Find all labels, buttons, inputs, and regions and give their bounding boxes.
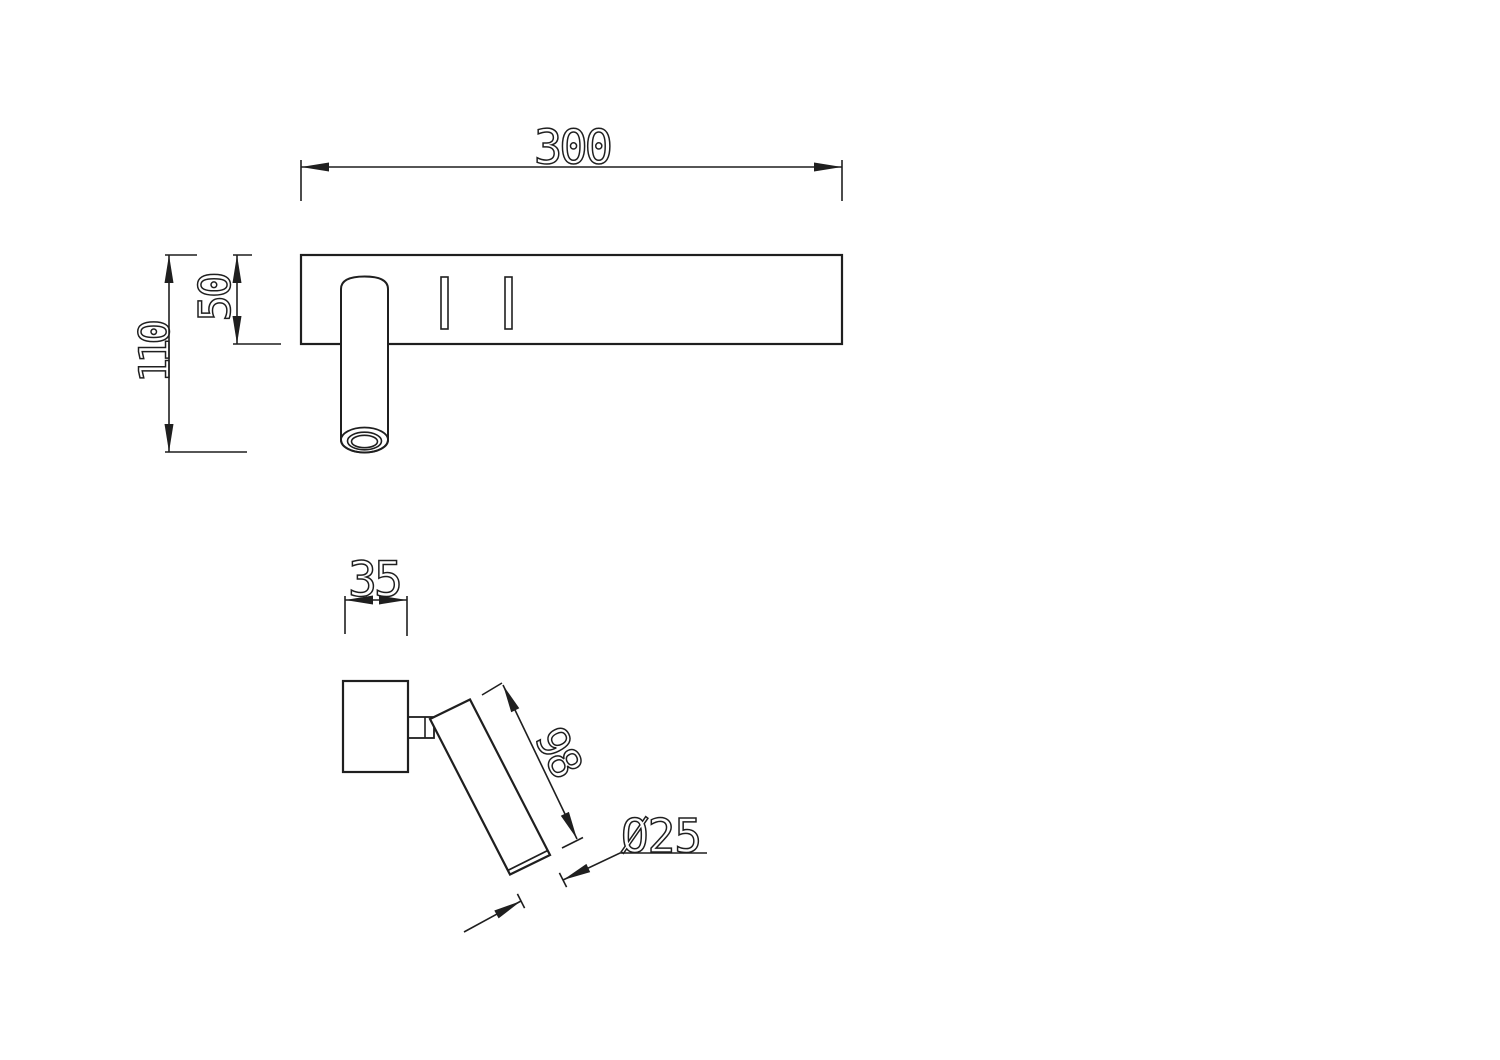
mount-block-outline bbox=[343, 681, 408, 772]
dim-label-total-height: 110 bbox=[134, 325, 176, 383]
dim-label-plate-height: 50 bbox=[194, 275, 238, 322]
dim-label-width: 300 bbox=[534, 125, 610, 172]
arrowhead-right-icon bbox=[814, 163, 842, 172]
arrowhead-down-icon bbox=[165, 424, 174, 452]
dim-head-diameter-25 bbox=[464, 853, 707, 932]
lamp-head bbox=[430, 700, 550, 875]
side-view bbox=[343, 596, 707, 933]
dim-label-mount-width: 35 bbox=[348, 556, 400, 604]
tube-body bbox=[341, 277, 388, 453]
reading-light-tube bbox=[341, 277, 388, 453]
lamp-head-body bbox=[430, 700, 550, 875]
extension-line bbox=[482, 683, 502, 695]
switch-slot-1 bbox=[441, 277, 448, 329]
front-view bbox=[165, 160, 843, 453]
arrowhead-left-icon bbox=[301, 163, 329, 172]
arrowhead-up-right-icon bbox=[494, 901, 521, 918]
arrowhead-up-icon bbox=[165, 255, 174, 283]
extension-line bbox=[562, 838, 583, 849]
arrowhead-up-left-icon bbox=[503, 685, 519, 712]
dim-label-head-diameter: Ø25 bbox=[621, 813, 701, 859]
switch-slot-2 bbox=[505, 277, 512, 329]
arrowhead-down-left-icon bbox=[563, 864, 590, 880]
line-art bbox=[0, 0, 1500, 1060]
technical-drawing-canvas: 300 110 50 35 98 Ø25 bbox=[0, 0, 1500, 1060]
arrowhead-down-right-icon bbox=[561, 812, 577, 839]
